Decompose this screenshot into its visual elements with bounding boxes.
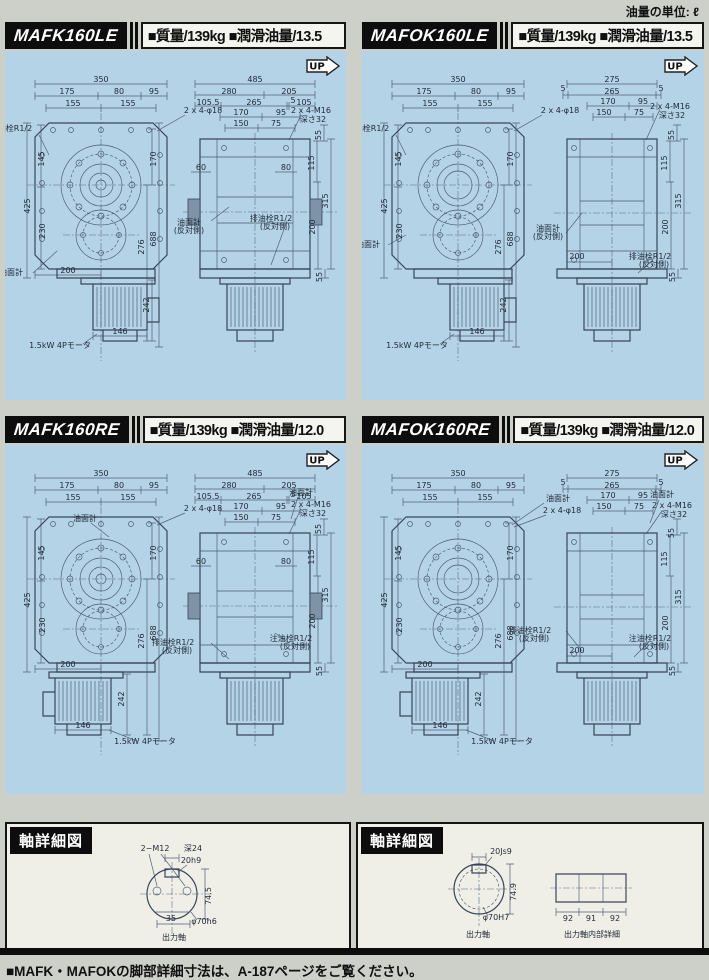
panel-header: MAFOK160LE ■質量/139kg ■潤滑油量/13.5	[362, 22, 704, 49]
dimension-label: 146	[112, 327, 127, 336]
dimension-label: 146	[432, 721, 447, 730]
dimension-label: (反対側)	[639, 259, 669, 269]
dimension-label: 55	[668, 272, 677, 282]
dimension-label: 2 x 4-M16	[652, 501, 692, 510]
dimension-label: 55	[315, 272, 324, 282]
dimension-label: 265	[604, 87, 619, 96]
dimension-label: 485	[247, 469, 262, 478]
panel-mafok160re: MAFOK160RE ■質量/139kg ■潤滑油量/12.0	[362, 416, 704, 794]
panel-header: MAFK160LE ■質量/139kg ■潤滑油量/13.5	[5, 22, 346, 49]
dimension-label: 275	[604, 75, 619, 84]
dimension-label: 688	[149, 231, 158, 246]
dimension-label: (反対側)	[174, 225, 204, 235]
dimension-label: 170	[149, 151, 158, 166]
dimension-label: 5	[658, 478, 663, 487]
dimension-label: 230	[395, 617, 404, 632]
spec-text: ■質量/139kg ■潤滑油量/13.5	[148, 25, 322, 46]
dimension-label: 350	[93, 75, 108, 84]
dimension-label: 95	[506, 87, 516, 96]
front-view-labels: 35017580951551552 x 4-φ18注油栓R1/214542523…	[362, 75, 579, 350]
dimension-label: 1.5kW 4Pモータ	[114, 737, 176, 746]
dimension-label: 115	[660, 551, 669, 566]
dimension-label: 95	[149, 87, 159, 96]
dimension-label: 20Js9	[490, 847, 512, 856]
dimension-label: φ70H7	[483, 913, 510, 922]
dimension-label: 1.5kW 4Pモータ	[471, 737, 533, 746]
separator-bars	[500, 22, 508, 49]
dimension-label: 155	[477, 493, 492, 502]
shaft-detail-title: 軸詳細図	[10, 827, 92, 854]
up-label: UP	[667, 62, 682, 73]
front-view-labels: 3501758095155155油面計2 x 4-φ18145425230170…	[380, 469, 581, 746]
dimension-label: 105.5	[197, 492, 220, 501]
panel-header: MAFOK160RE ■質量/139kg ■潤滑油量/12.0	[362, 416, 704, 443]
model-badge: MAFK160RE	[5, 416, 129, 443]
dimension-label: 油面計	[289, 487, 313, 497]
separator-bars	[132, 416, 140, 443]
gearmotor-drawing: 3501758095155155油面計2 x 4-φ18145425230170…	[362, 445, 704, 794]
separator-bars	[130, 22, 138, 49]
gearmotor-drawing: 35017580951551552 x 4-φ18油面計145425230170…	[5, 445, 346, 794]
model-badge: MAFOK160RE	[362, 416, 499, 443]
dimension-label: 425	[23, 592, 32, 607]
dimension-label: 350	[450, 75, 465, 84]
dimension-label: 油面計	[362, 239, 380, 249]
dimension-label: 155	[120, 493, 135, 502]
dimension-label: 115	[660, 155, 669, 170]
dimension-label: 2−M12	[141, 844, 170, 853]
dimension-label: 74.5	[204, 887, 213, 905]
up-badge: UP	[306, 450, 340, 470]
dimension-label: 315	[321, 587, 330, 602]
dimension-label: 145	[37, 545, 46, 560]
dimension-label: 200	[661, 219, 670, 234]
dimension-label: 242	[142, 297, 151, 312]
dimension-label: 深さ32	[659, 111, 685, 120]
dimension-label: 80	[471, 481, 481, 490]
dimension-label: 55	[667, 528, 676, 538]
dimension-label: 170	[600, 491, 615, 500]
dimension-label: 242	[117, 691, 126, 706]
dimension-label: 200	[417, 660, 432, 669]
model-name: MAFOK160LE	[370, 26, 490, 46]
dimension-label: 315	[674, 193, 683, 208]
shaft-detail-panel-left: 軸詳細図 2−M12深2420h974.535φ70h6出力軸	[5, 822, 351, 952]
dimension-label: (反対側)	[260, 221, 290, 231]
dimension-label: 200	[569, 646, 584, 655]
dimension-label: 425	[380, 198, 389, 213]
spec-box: ■質量/139kg ■潤滑油量/13.5	[141, 22, 346, 49]
dimension-label: 200	[60, 660, 75, 669]
dimension-label: 155	[65, 99, 80, 108]
dimension-label: 出力軸内部詳細	[564, 929, 620, 939]
dimension-label: 80	[114, 87, 124, 96]
dimension-label: 出力軸	[466, 929, 490, 939]
dimension-label: 74.9	[509, 883, 518, 901]
dimension-label: (反対側)	[162, 645, 192, 655]
dimension-label: 75	[634, 502, 644, 511]
drawing-area: 35017580951551552 x 4-φ18注油栓R1/214542523…	[362, 51, 704, 400]
dimension-label: 265	[246, 98, 261, 107]
dimension-label: φ70h6	[191, 917, 217, 926]
dimension-label: 175	[416, 481, 431, 490]
dimension-label: 315	[321, 193, 330, 208]
dimension-label: 350	[93, 469, 108, 478]
dimension-label: 5	[658, 84, 663, 93]
model-name: MAFOK160RE	[370, 420, 491, 440]
dimension-label: 276	[137, 239, 146, 254]
dimension-label: 230	[38, 223, 47, 238]
dimension-label: 155	[65, 493, 80, 502]
dimension-label: 95	[638, 491, 648, 500]
dimension-label: 688	[506, 231, 515, 246]
spec-text: ■質量/139kg ■潤滑油量/12.0	[150, 419, 324, 440]
dimension-label: 105.5	[197, 98, 220, 107]
dimension-label: 155	[422, 493, 437, 502]
dimension-label: 170	[149, 545, 158, 560]
dimension-label: 深24	[184, 844, 202, 853]
dimension-label: 115	[307, 549, 316, 564]
separator-bars	[502, 416, 510, 443]
panel-header: MAFK160RE ■質量/139kg ■潤滑油量/12.0	[5, 416, 346, 443]
dimension-label: 油面計	[5, 267, 23, 277]
model-badge: MAFOK160LE	[362, 22, 497, 49]
dimension-label: 275	[604, 469, 619, 478]
spec-box: ■質量/139kg ■潤滑油量/12.0	[513, 416, 704, 443]
dimension-label: 油面計	[650, 489, 674, 499]
dimension-label: 60	[196, 163, 206, 172]
dimension-label: 242	[474, 691, 483, 706]
dimension-label: 55	[314, 524, 323, 534]
panel-mafk160le: MAFK160LE ■質量/139kg ■潤滑油量/13.5	[5, 22, 346, 400]
dimension-label: 155	[120, 99, 135, 108]
dimension-label: 276	[494, 633, 503, 648]
up-badge: UP	[664, 450, 698, 470]
dimension-label: 350	[450, 469, 465, 478]
up-label: UP	[309, 62, 324, 73]
dimension-label: 145	[394, 545, 403, 560]
spec-box: ■質量/139kg ■潤滑油量/12.0	[143, 416, 346, 443]
dimension-label: 265	[604, 481, 619, 490]
dimension-label: (反対側)	[639, 641, 669, 651]
dimension-label: 115	[307, 155, 316, 170]
dimension-label: 95	[638, 97, 648, 106]
dimension-label: 146	[469, 327, 484, 336]
dimension-label: 2 x 4-M16	[291, 500, 331, 509]
gearmotor-drawing: 35017580951551552 x 4-φ18注油栓R1/214542523…	[5, 51, 346, 400]
dimension-label: 200	[308, 219, 317, 234]
dimension-label: 485	[247, 75, 262, 84]
dimension-label: 95	[149, 481, 159, 490]
spec-text: ■質量/139kg ■潤滑油量/13.5	[518, 25, 692, 46]
shaft-detail-panel-right: 軸詳細図 20Js974.9φ70H7出力軸929192出力軸内部詳細	[356, 822, 704, 952]
dimension-label: 80	[114, 481, 124, 490]
dimension-label: (反対側)	[519, 633, 549, 643]
dimension-label: (反対側)	[280, 641, 310, 651]
panel-mafk160re: MAFK160RE ■質量/139kg ■潤滑油量/12.0	[5, 416, 346, 794]
dimension-label: 75	[271, 513, 281, 522]
dimension-label: 2 x 4-φ18	[184, 106, 222, 115]
dimension-label: 280	[221, 87, 236, 96]
dimension-label: 170	[506, 151, 515, 166]
dimension-label: 注油栓R1/2	[362, 123, 389, 133]
dimension-label: 5	[560, 84, 565, 93]
drawing-area: 35017580951551552 x 4-φ18油面計145425230170…	[5, 445, 346, 794]
dimension-label: 2 x 4-φ18	[541, 106, 579, 115]
dimension-label: 175	[59, 481, 74, 490]
dimension-label: 280	[221, 481, 236, 490]
dimension-label: 200	[661, 615, 670, 630]
dimension-label: 150	[233, 119, 248, 128]
dimension-label: 170	[233, 502, 248, 511]
dimension-label: 170	[506, 545, 515, 560]
dimension-label: 425	[23, 198, 32, 213]
dimension-label: 95	[276, 108, 286, 117]
dimension-label: 150	[233, 513, 248, 522]
up-badge: UP	[664, 56, 698, 76]
dimension-label: 油面計	[73, 513, 97, 523]
gearmotor-drawing: 35017580951551552 x 4-φ18注油栓R1/214542523…	[362, 51, 704, 400]
dimension-label: 深さ32	[300, 115, 326, 124]
spec-text: ■質量/139kg ■潤滑油量/12.0	[520, 419, 694, 440]
dimension-label: 155	[477, 99, 492, 108]
dimension-label: 230	[395, 223, 404, 238]
dimension-label: 深さ32	[661, 510, 687, 519]
dimension-label: 注油栓R1/2	[5, 123, 32, 133]
dimension-label: 170	[233, 108, 248, 117]
dimension-label: 55	[668, 666, 677, 676]
footer-note: ■MAFK・MAFOKの脚部詳細寸法は、A-187ページをご覧ください。	[6, 964, 423, 979]
dimension-label: 2 x 4-φ18	[543, 506, 581, 515]
spec-box: ■質量/139kg ■潤滑油量/13.5	[511, 22, 704, 49]
dimension-label: 276	[494, 239, 503, 254]
dimension-label: 150	[596, 108, 611, 117]
dimension-label: 276	[137, 633, 146, 648]
dimension-label: 1.5kW 4Pモータ	[386, 341, 448, 350]
dimension-label: 265	[246, 492, 261, 501]
dimension-label: 170	[600, 97, 615, 106]
dimension-label: 2 x 4-φ18	[184, 504, 222, 513]
dimension-label: 175	[59, 87, 74, 96]
shaft-detail-title: 軸詳細図	[361, 827, 443, 854]
dimension-label: 315	[674, 589, 683, 604]
dimension-label: 80	[471, 87, 481, 96]
dimension-label: 200	[569, 252, 584, 261]
oil-unit-note: 油量の単位: ℓ	[626, 3, 699, 20]
drawing-area: 3501758095155155油面計2 x 4-φ18145425230170…	[362, 445, 704, 794]
dimension-label: (反対側)	[533, 231, 563, 241]
dimension-label: 80	[281, 557, 291, 566]
drawing-area: 35017580951551552 x 4-φ18注油栓R1/214542523…	[5, 51, 346, 400]
dimension-label: 60	[196, 557, 206, 566]
dimension-label: 75	[271, 119, 281, 128]
dimension-label: 145	[394, 151, 403, 166]
dimension-label: 175	[416, 87, 431, 96]
up-label: UP	[309, 456, 324, 467]
dimension-label: 5	[560, 478, 565, 487]
dimension-label: 75	[634, 108, 644, 117]
dimension-label: 200	[308, 613, 317, 628]
model-name: MAFK160LE	[13, 26, 119, 46]
dimension-label: 2 x 4-M16	[650, 102, 690, 111]
dimension-label: 出力軸	[162, 932, 186, 942]
dimension-label: 5	[290, 96, 295, 105]
dimension-label: 230	[38, 617, 47, 632]
dimension-label: 35	[166, 914, 176, 923]
dimension-label: 91	[586, 914, 596, 923]
panel-mafok160le: MAFOK160LE ■質量/139kg ■潤滑油量/13.5	[362, 22, 704, 400]
dimension-label: 55	[315, 666, 324, 676]
dimension-label: 146	[75, 721, 90, 730]
dimension-label: 145	[37, 151, 46, 166]
dimension-label: 55	[314, 130, 323, 140]
dimension-label: 20h9	[181, 856, 201, 865]
dimension-label: 92	[610, 914, 620, 923]
dimension-label: 200	[60, 266, 75, 275]
dimension-label: 95	[506, 481, 516, 490]
dimension-label: 205	[281, 87, 296, 96]
dimension-label: 深さ32	[300, 509, 326, 518]
dimension-label: 242	[499, 297, 508, 312]
model-name: MAFK160RE	[13, 420, 121, 440]
page-footer: ■MAFK・MAFOKの脚部詳細寸法は、A-187ページをご覧ください。	[0, 948, 709, 980]
dimension-label: 92	[563, 914, 573, 923]
dimension-label: 55	[667, 130, 676, 140]
dimension-label: 油面計	[546, 493, 570, 503]
dimension-label: 1.5kW 4Pモータ	[29, 341, 91, 350]
model-badge: MAFK160LE	[5, 22, 127, 49]
dimension-label: 425	[380, 592, 389, 607]
dimension-label: 150	[596, 502, 611, 511]
up-label: UP	[667, 456, 682, 467]
dimension-label: 80	[281, 163, 291, 172]
dimension-label: 95	[276, 502, 286, 511]
dimension-label: 2 x 4-M16	[291, 106, 331, 115]
dimension-label: 155	[422, 99, 437, 108]
up-badge: UP	[306, 56, 340, 76]
